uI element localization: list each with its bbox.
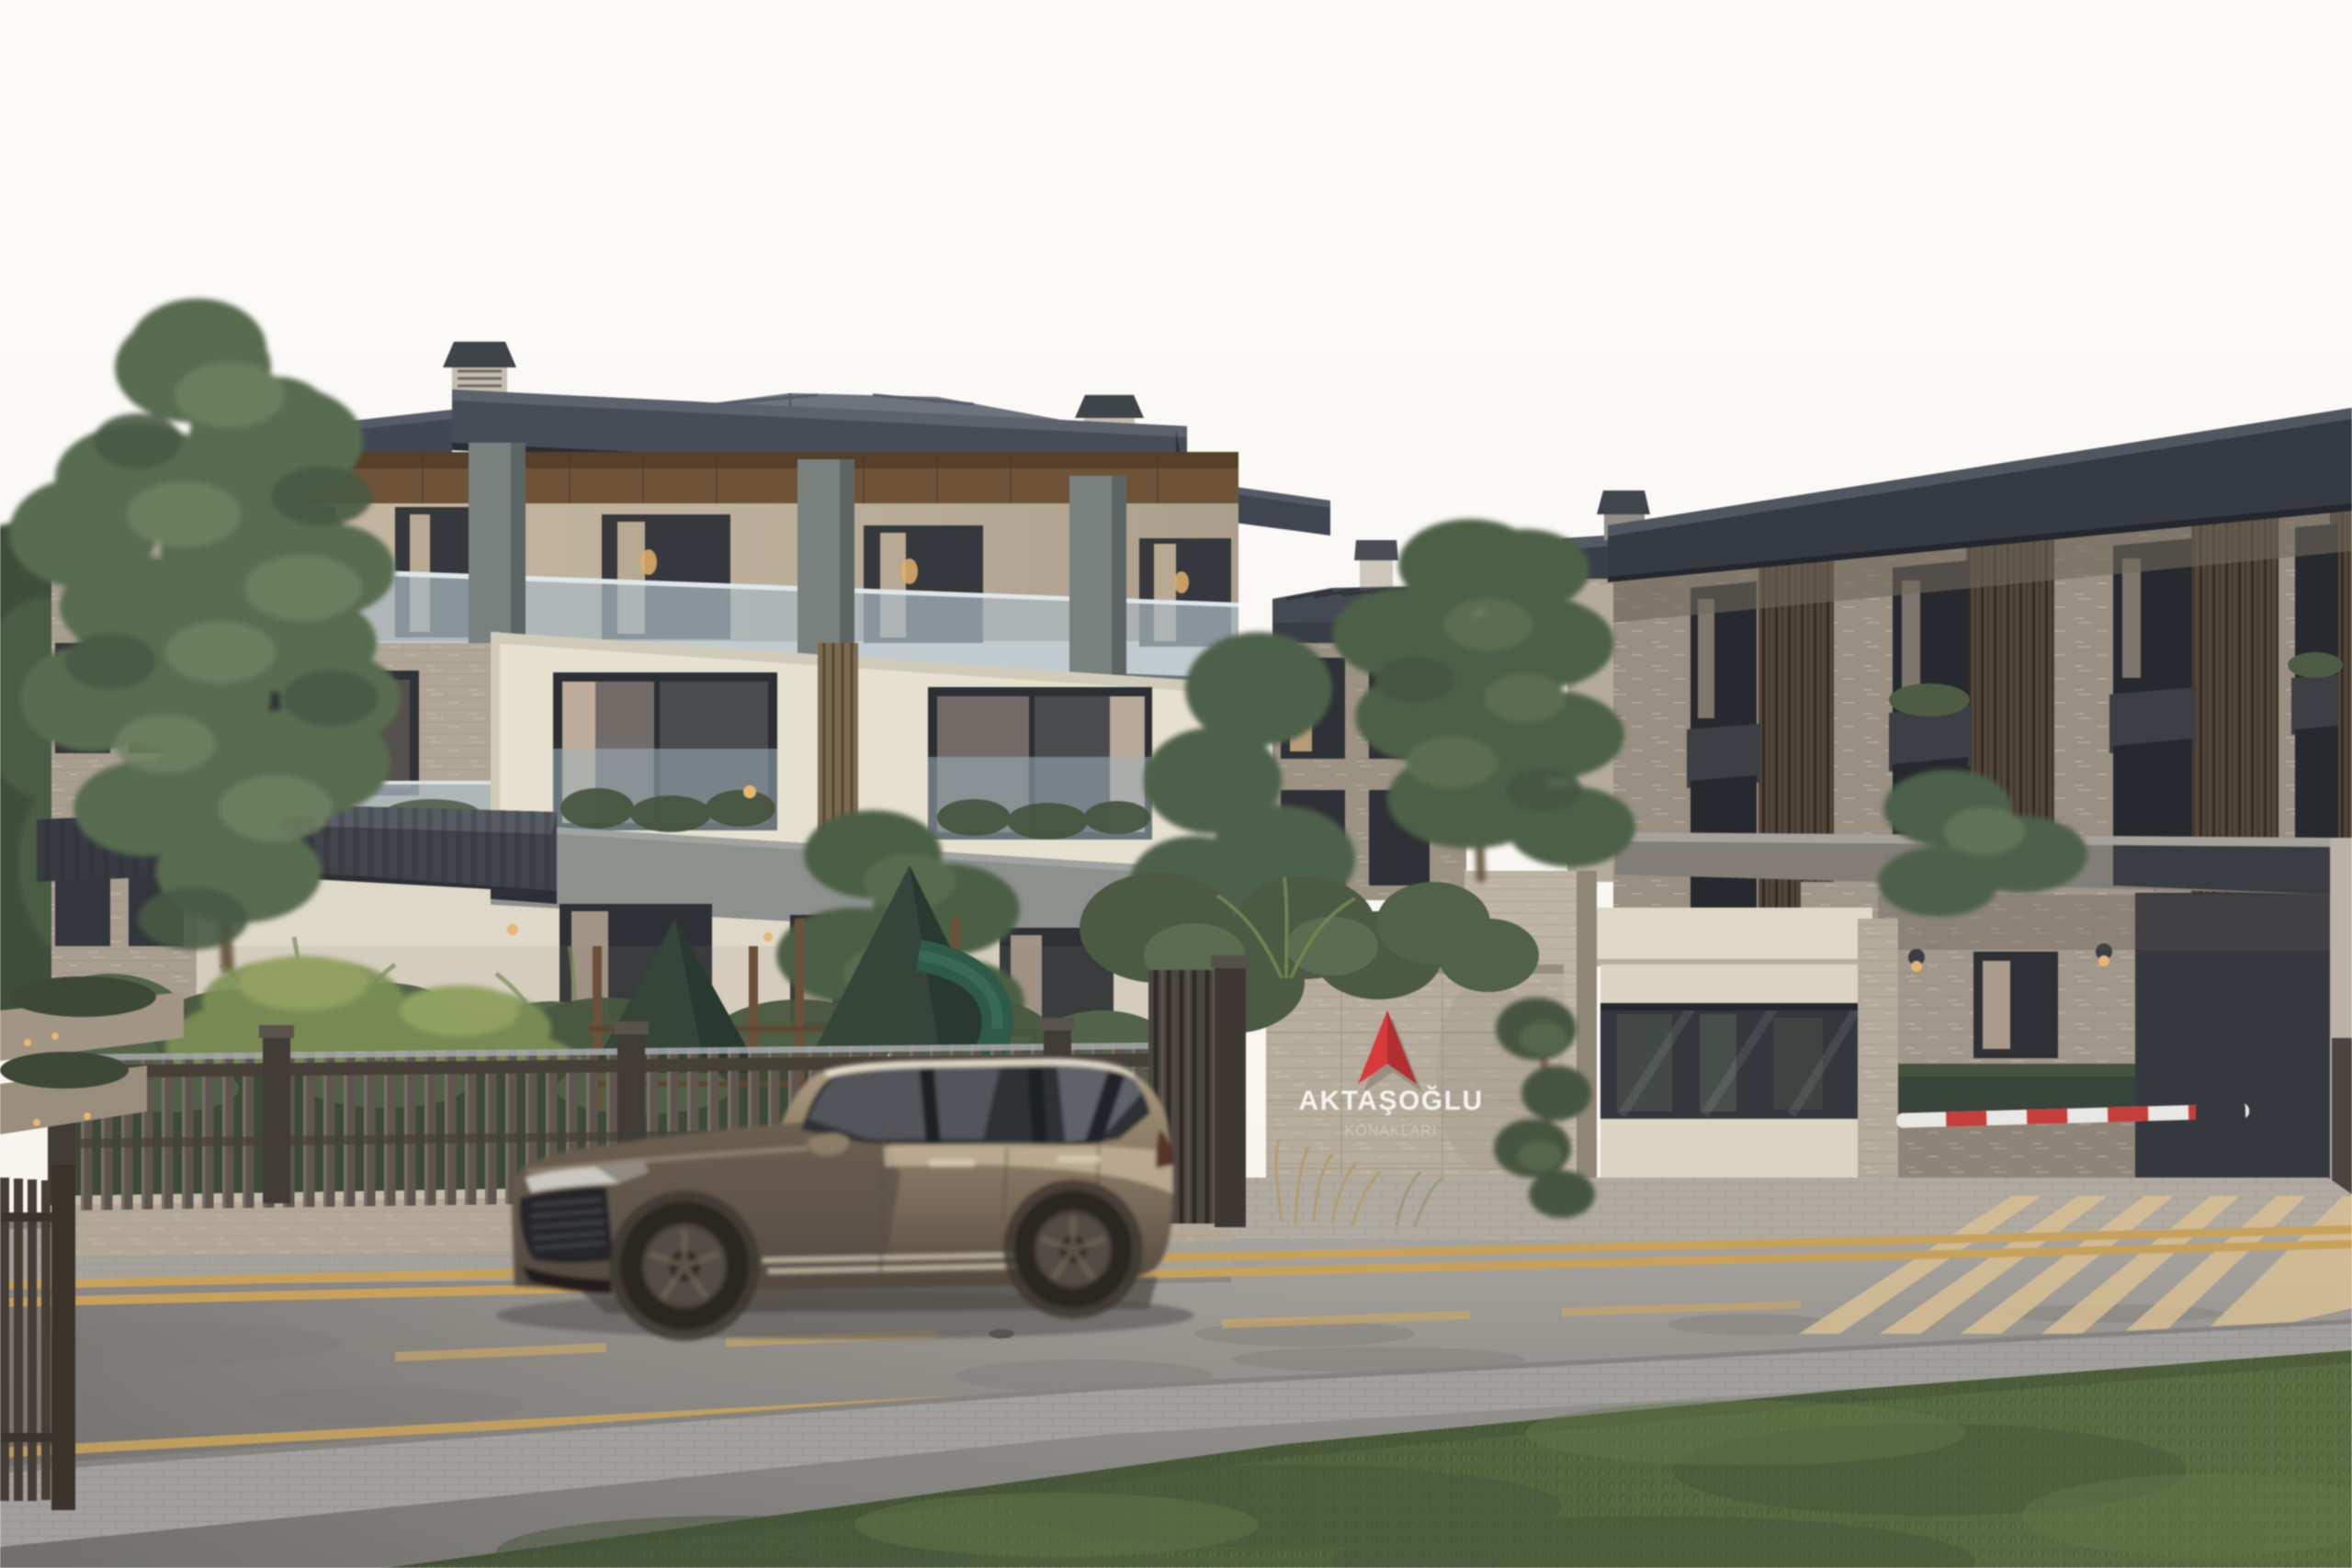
svg-text:KONAKLARI: KONAKLARI [1345,1123,1438,1139]
svg-text:AKTAŞOĞLU: AKTAŞOĞLU [1298,1085,1483,1116]
